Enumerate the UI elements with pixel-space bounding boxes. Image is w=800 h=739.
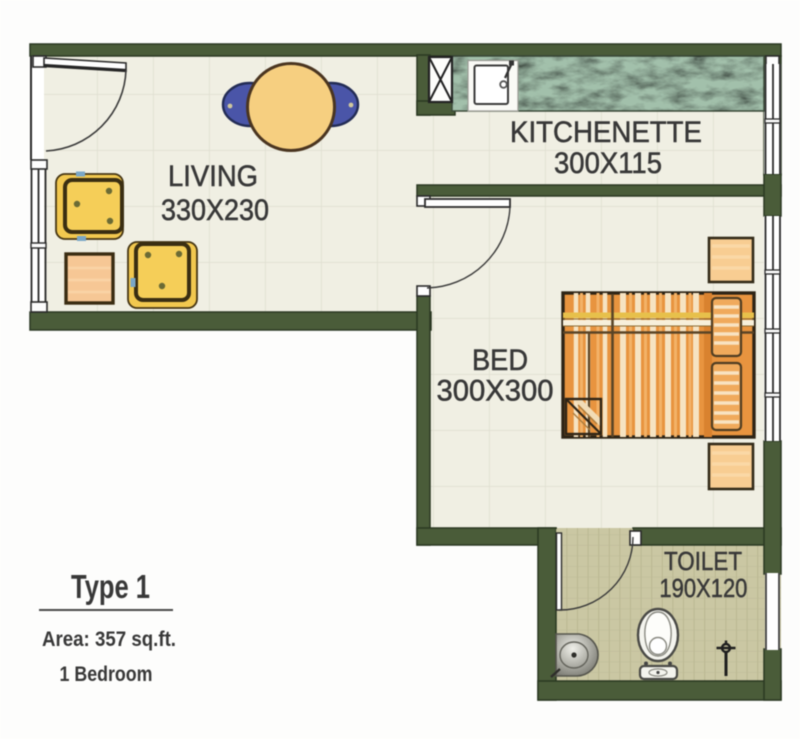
svg-text:300X300: 300X300: [437, 375, 554, 408]
svg-text:190X120: 190X120: [659, 573, 747, 603]
svg-text:Area: 357 sq.ft.: Area: 357 sq.ft.: [42, 627, 176, 651]
svg-text:1 Bedroom: 1 Bedroom: [60, 662, 153, 686]
svg-text:BED: BED: [472, 344, 528, 377]
svg-text:KITCHENETTE: KITCHENETTE: [510, 116, 702, 149]
svg-text:Type 1: Type 1: [71, 568, 150, 605]
svg-text:330X230: 330X230: [161, 194, 269, 227]
svg-text:TOILET: TOILET: [664, 546, 742, 576]
svg-text:LIVING: LIVING: [168, 160, 258, 193]
svg-text:300X115: 300X115: [554, 147, 662, 180]
